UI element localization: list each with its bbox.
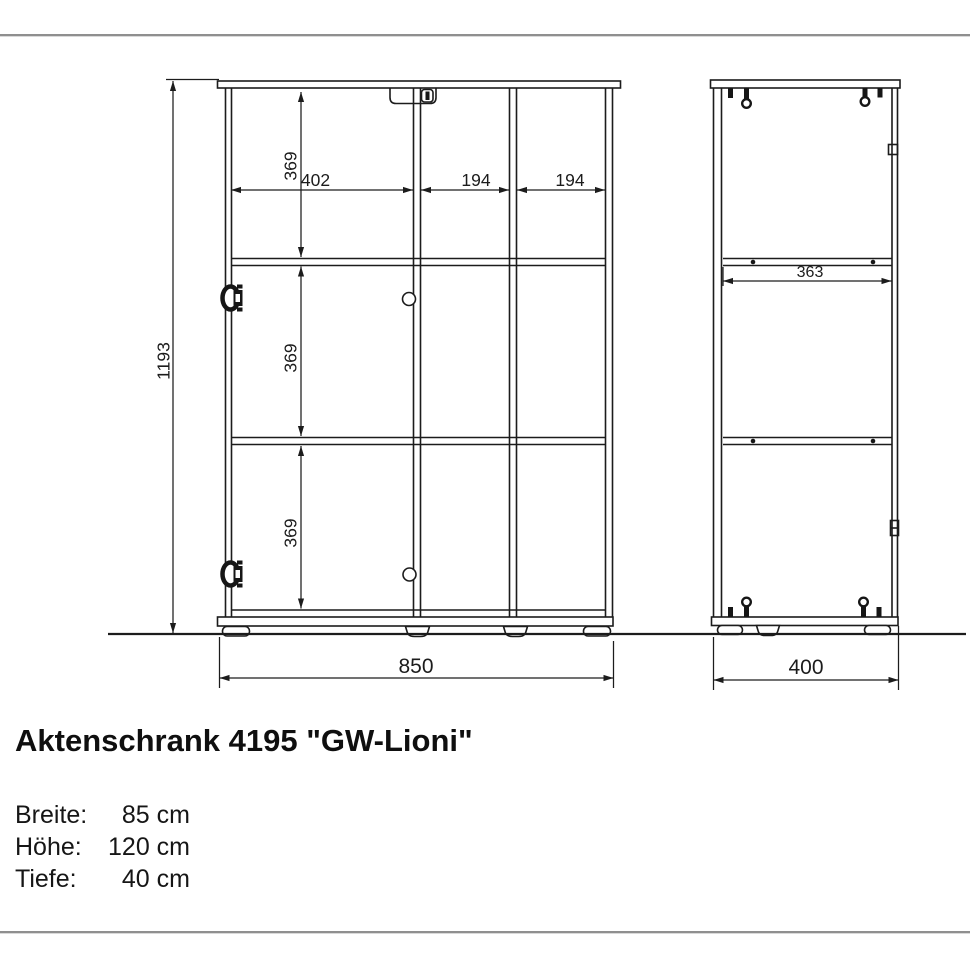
front-view (218, 81, 621, 637)
dim-label-total-depth: 400 (788, 656, 823, 679)
front-top-board (218, 81, 621, 88)
door-knob (403, 293, 416, 306)
spec-value: 120 cm (70, 833, 190, 862)
dim-label-shelf-depth: 363 (797, 264, 824, 281)
side-walls (714, 88, 898, 617)
dim-label-bottom-section: 369 (281, 518, 301, 547)
dim-label-middle-section: 369 (281, 343, 301, 372)
dim-total-width: 850 (220, 637, 614, 688)
dimensions: 1193 369 369 369 402 194 194 850 (154, 80, 899, 691)
front-shelves (231, 259, 605, 611)
dim-section-heights: 369 369 369 (281, 92, 302, 609)
dim-shelf-depth: 363 (723, 264, 892, 286)
dim-label-total-width: 850 (398, 655, 433, 678)
dim-label-left-compartment: 402 (301, 170, 330, 190)
dim-label-total-height: 1193 (154, 342, 174, 380)
product-specs: Breite: 85 cm Höhe: 120 cm Tiefe: 40 cm (15, 801, 315, 897)
side-view (711, 80, 901, 636)
door-hinge (223, 561, 243, 588)
spec-row-breite: Breite: 85 cm (15, 801, 315, 833)
door-knob (403, 568, 416, 581)
dim-total-depth: 400 (714, 626, 899, 690)
shelf-pins (751, 260, 876, 444)
dim-label-right-compartment: 194 (555, 170, 584, 190)
front-plinth (218, 617, 614, 626)
bottom-mounting-bolts (728, 598, 882, 617)
spec-value: 85 cm (70, 801, 190, 830)
side-bottom-board (712, 617, 899, 626)
dim-total-height: 1193 (154, 80, 220, 634)
door-hinge (223, 285, 243, 312)
spec-row-tiefe: Tiefe: 40 cm (15, 865, 315, 897)
front-vertical-dividers (414, 88, 517, 617)
product-title: Aktenschrank 4195 "GW-Lioni" (15, 723, 473, 759)
spec-label: Tiefe: (15, 865, 77, 894)
bottom-divider (0, 931, 970, 933)
technical-drawing: 1193 369 369 369 402 194 194 850 (0, 0, 970, 700)
spec-row-hoehe: Höhe: 120 cm (15, 833, 315, 865)
dim-label-top-section: 369 (281, 151, 301, 180)
top-mounting-bolts (728, 88, 883, 108)
spec-value: 40 cm (70, 865, 190, 894)
side-top-board (711, 80, 901, 88)
side-shelves (723, 259, 892, 445)
dim-label-middle-compartment: 194 (461, 170, 490, 190)
